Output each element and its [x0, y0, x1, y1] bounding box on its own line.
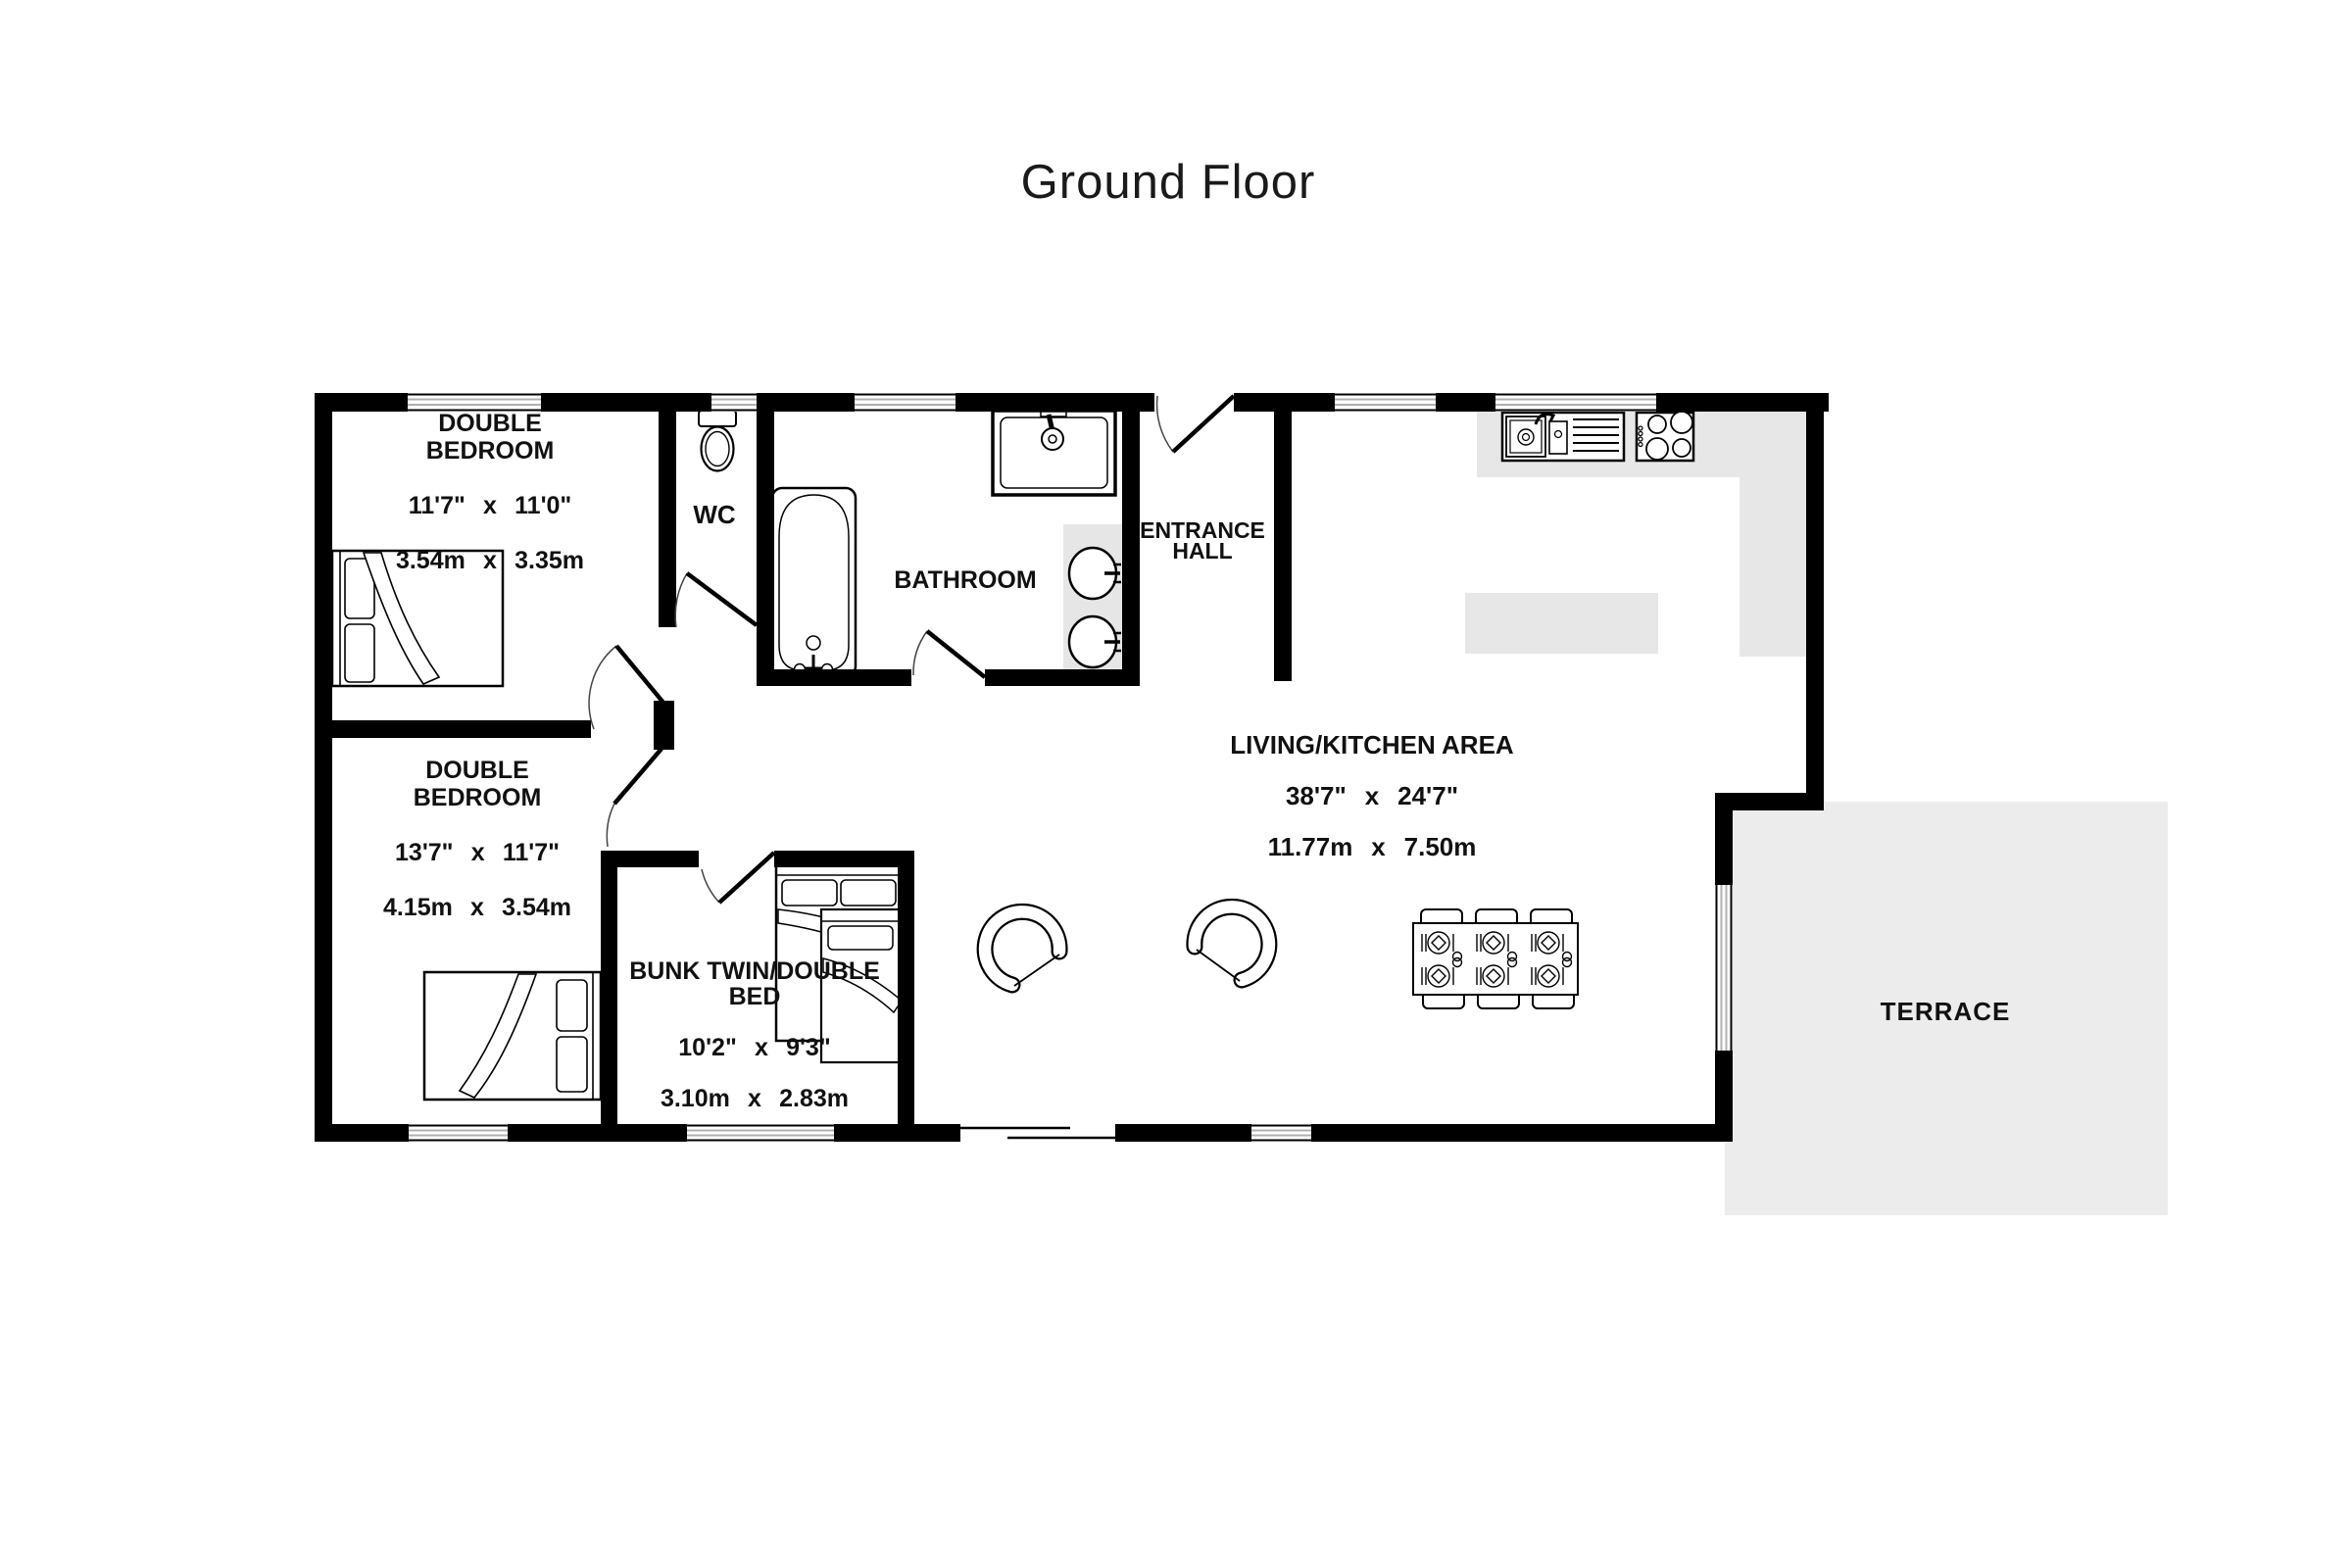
room-dims-imperial: 11'7" x 11'0" [396, 492, 584, 519]
room-name: WC [693, 501, 735, 528]
room-name: DOUBLE BEDROOM [396, 410, 584, 465]
room-name: ENTRANCE HALL [1140, 520, 1265, 562]
room-name: DOUBLE BEDROOM [383, 757, 571, 811]
hob-icon [1637, 412, 1693, 461]
armchair-icon [1195, 906, 1269, 981]
window-icon [1251, 1124, 1311, 1142]
room-label-living-kitchen: LIVING/KITCHEN AREA 38'7" x 24'7" 11.77m… [1230, 707, 1513, 885]
bathroom-door-icon [913, 631, 985, 677]
room-dims-imperial: 13'7" x 11'7" [383, 839, 571, 866]
room-dims-imperial: 10'2" x 9'3" [629, 1035, 880, 1060]
toilet-icon [699, 411, 736, 471]
room-label-double-bedroom-1: DOUBLE BEDROOM 11'7" x 11'0" 3.54m x 3.3… [396, 382, 584, 602]
wc-door-icon [675, 573, 757, 627]
bathtub-icon [772, 488, 856, 676]
room-dims-imperial: 38'7" x 24'7" [1230, 783, 1513, 808]
window-icon [1495, 393, 1656, 412]
double-bed-icon [424, 972, 601, 1100]
room-dims-metric: 11.77m x 7.50m [1230, 834, 1513, 859]
page-title: Ground Floor [1021, 155, 1316, 210]
room-dims-metric: 3.54m x 3.35m [396, 547, 584, 574]
window-icon [1335, 393, 1436, 412]
kitchen-island [1465, 593, 1658, 654]
room-label-wc: WC [693, 473, 735, 556]
bunk-room-door-icon [702, 853, 774, 903]
floor-plan-page: Ground Floor DOUBLE BEDROOM 11'7" x 11'0… [0, 0, 2352, 1568]
room-name: BUNK TWIN/DOUBLE BED [629, 958, 880, 1009]
room-label-bunk-room: BUNK TWIN/DOUBLE BED 10'2" x 9'3" 3.10m … [629, 933, 880, 1137]
room-dims-metric: 4.15m x 3.54m [383, 894, 571, 921]
room-label-terrace: TERRACE [1881, 970, 2011, 1053]
armchair-icon [985, 911, 1059, 986]
room-label-double-bedroom-2: DOUBLE BEDROOM 13'7" x 11'7" 4.15m x 3.5… [383, 729, 571, 949]
shower-icon [993, 411, 1115, 495]
room-label-bathroom: BATHROOM [894, 539, 1036, 621]
room-label-entrance-hall: ENTRANCE HALL [1140, 500, 1265, 582]
room-name: BATHROOM [894, 566, 1036, 594]
window-icon [711, 393, 757, 412]
window-icon [855, 393, 955, 412]
dining-table-icon [1413, 909, 1578, 1008]
window-icon [409, 1124, 508, 1142]
floor-plan-drawing [0, 0, 2352, 1568]
room-dims-metric: 3.10m x 2.83m [629, 1086, 880, 1111]
room-name: TERRACE [1881, 998, 2011, 1025]
kitchen-sink-icon [1502, 413, 1624, 461]
bedroom-door-icon [607, 749, 661, 847]
bedroom-door-icon [589, 646, 663, 729]
room-name: LIVING/KITCHEN AREA [1230, 732, 1513, 758]
window-icon [1715, 885, 1733, 1051]
sliding-door-icon [960, 1122, 1115, 1144]
